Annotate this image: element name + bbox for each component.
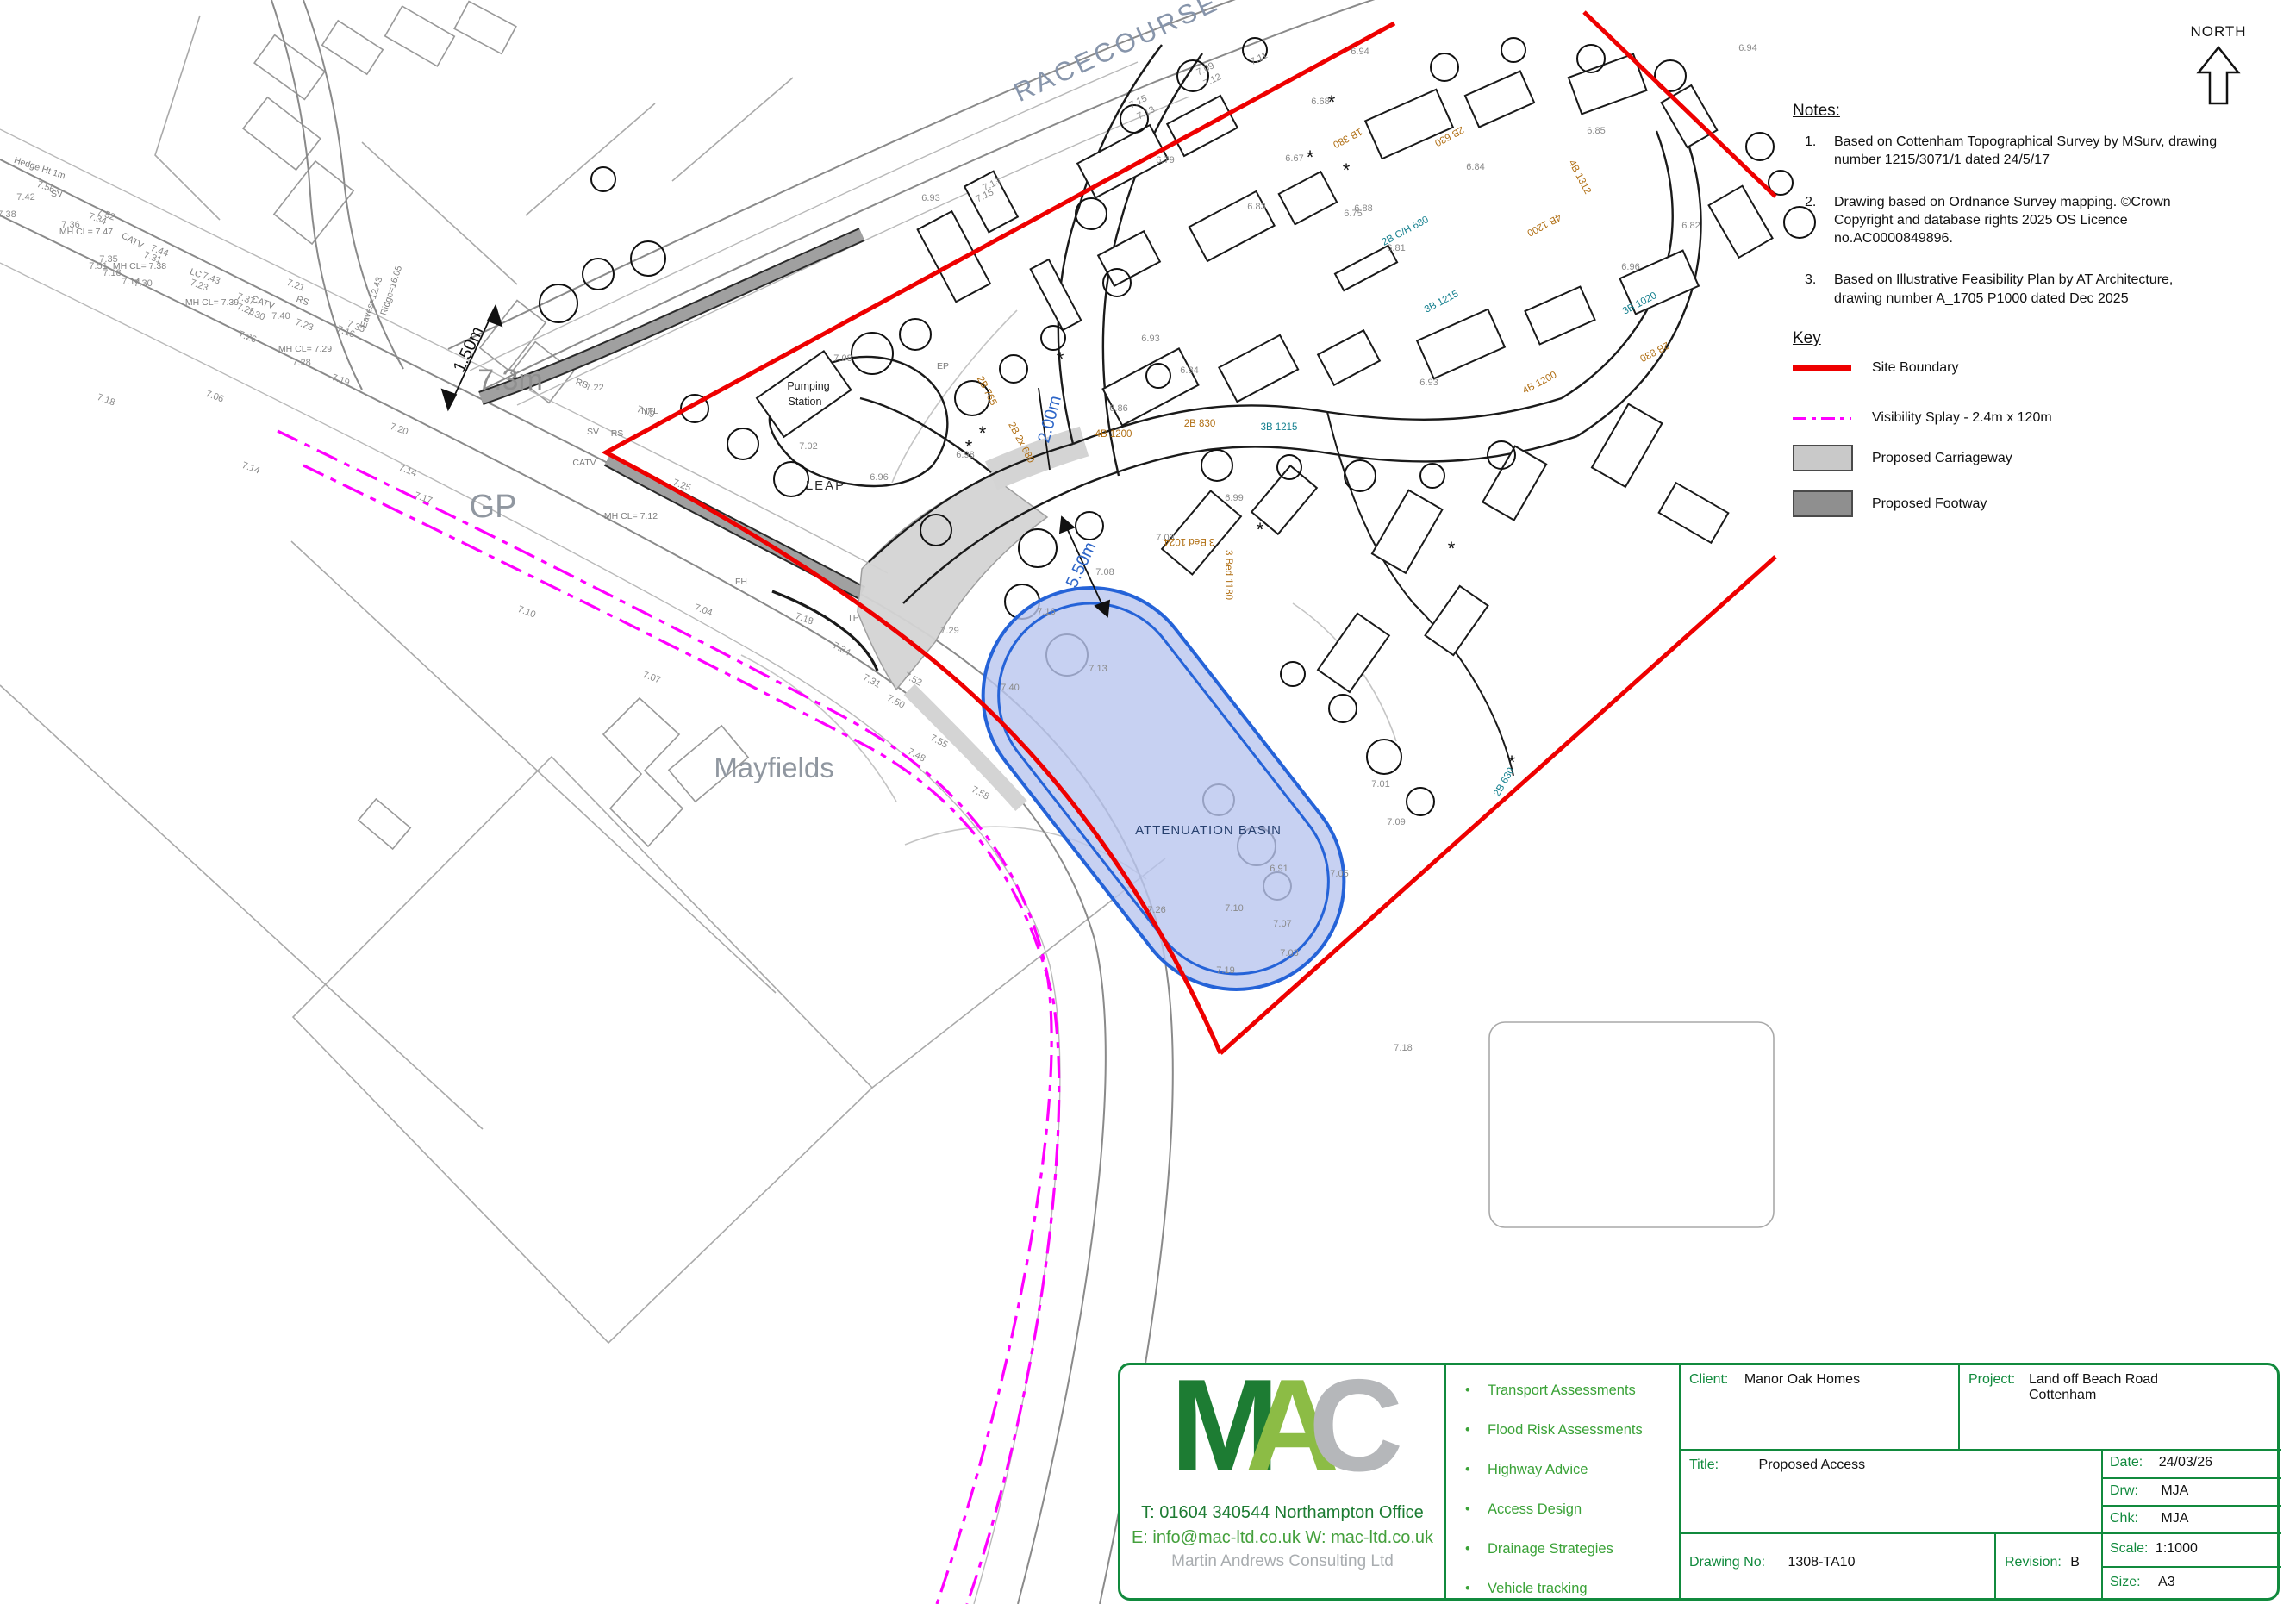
map-annotation: 7.02 <box>799 441 817 452</box>
logo-email-line: E: info@mac-ltd.co.uk W: mac-ltd.co.uk <box>1120 1528 1444 1548</box>
map-annotation: 7.31 <box>861 672 883 690</box>
map-annotation: NORTH <box>2190 23 2246 40</box>
revision-label: Revision: <box>2005 1555 2062 1570</box>
map-annotation: * <box>1448 538 1456 559</box>
title-label: Title: <box>1689 1457 1719 1472</box>
map-annotation: 6.86 <box>1109 403 1127 414</box>
map-annotation: 7.29 <box>940 626 958 636</box>
date-label: Date: <box>2110 1455 2143 1470</box>
map-annotation: 6.83 <box>1247 202 1265 212</box>
map-annotation: 1B 380 <box>1331 126 1363 150</box>
map-annotation: RS <box>611 428 624 439</box>
key-label: Proposed Footway <box>1872 496 1987 512</box>
map-annotation: * <box>1257 519 1264 540</box>
client-value: Manor Oak Homes <box>1744 1372 1860 1388</box>
map-annotation: MH CL= 7.29 <box>278 344 332 354</box>
map-annotation: GP <box>470 489 517 525</box>
key-label: Proposed Carriageway <box>1872 451 2012 466</box>
drawing-number-cell: Drawing No: 1308-TA10 <box>1681 1532 1994 1598</box>
map-annotation: 7.38 <box>0 209 16 220</box>
map-annotation: 7.14 <box>240 460 261 477</box>
notes-heading: Notes: <box>1793 102 2262 121</box>
scale-label: Scale: <box>2110 1541 2148 1556</box>
map-annotation: 7.50 <box>885 693 907 711</box>
note-item: 1. Based on Cottenham Topographical Surv… <box>1793 133 2262 170</box>
date-value: 24/03/26 <box>2159 1455 2212 1470</box>
map-annotation: FH <box>735 577 747 587</box>
drw-label: Drw: <box>2110 1483 2138 1498</box>
title-block-info: Client: Manor Oak Homes Project: Land of… <box>1679 1365 2280 1598</box>
title-value: Proposed Access <box>1759 1457 1866 1473</box>
map-annotation: 7.03 <box>1280 948 1298 958</box>
map-annotation: * <box>1508 752 1516 773</box>
project-cell: Project: Land off Beach Road Cottenham <box>1958 1365 2281 1449</box>
note-number: 3. <box>1805 271 1834 308</box>
map-annotation: CATV <box>572 458 596 468</box>
map-annotation: 7.10 <box>1225 903 1243 914</box>
map-annotation: 7.30 <box>246 307 266 323</box>
map-annotation: ATTENUATION BASIN <box>1135 823 1282 838</box>
project-value-line2: Cottenham <box>2029 1388 2273 1403</box>
service-item: •Drainage Strategies <box>1465 1541 1679 1557</box>
map-annotation: 7.42 <box>16 192 34 203</box>
note-text: Based on Illustrative Feasibility Plan b… <box>1834 271 2218 308</box>
map-annotation: 7.26 <box>237 329 258 346</box>
map-annotation: Mayfields <box>714 752 833 783</box>
title-block: MAC T: 01604 340544 Northampton Office E… <box>1118 1363 2280 1601</box>
map-annotation: 7.48 <box>906 746 927 765</box>
map-annotation: 6.93 <box>921 193 939 203</box>
map-annotation: 7.21 <box>285 278 306 294</box>
map-annotation: 7.26 <box>1147 905 1165 915</box>
map-annotation: 7.14 <box>397 463 418 479</box>
logo-phone-line: T: 01604 340544 Northampton Office <box>1120 1503 1444 1523</box>
service-item: •Vehicle tracking <box>1465 1581 1679 1597</box>
key-panel: Key Site Boundary Visibility Splay - 2.4… <box>1793 329 2262 536</box>
map-annotation: 7.36 <box>61 220 79 230</box>
map-annotation: 4B 1312 <box>1566 159 1593 196</box>
map-annotation: 7.19 <box>1216 965 1234 976</box>
map-annotation: 6.68 <box>1311 97 1329 107</box>
client-label: Client: <box>1689 1372 1728 1387</box>
service-item: •Access Design <box>1465 1501 1679 1518</box>
map-annotation: 7.52 <box>902 671 924 689</box>
map-annotation: 5.50m <box>1063 540 1100 591</box>
drawn-by-cell: Drw: MJA <box>2101 1477 2281 1505</box>
note-text: Drawing based on Ordnance Survey mapping… <box>1834 193 2218 248</box>
map-annotation: 7.34 <box>831 640 852 658</box>
map-annotation: Ridge=16.05 <box>378 265 404 317</box>
size-label: Size: <box>2110 1575 2141 1589</box>
map-annotation: * <box>1057 348 1064 370</box>
drw-value: MJA <box>2161 1483 2188 1499</box>
key-item-footway: Proposed Footway <box>1793 490 2262 517</box>
map-annotation: 7.3m <box>477 364 543 396</box>
logo-company-line: Martin Andrews Consulting Ltd <box>1120 1552 1444 1571</box>
drawing-no-value: 1308-TA10 <box>1788 1555 1855 1570</box>
revision-value: B <box>2070 1555 2080 1570</box>
note-number: 1. <box>1805 133 1834 170</box>
key-item-site-boundary: Site Boundary <box>1793 360 2262 376</box>
note-item: 2. Drawing based on Ordnance Survey mapp… <box>1793 193 2262 248</box>
scale-cell: Scale: 1:1000 <box>2101 1532 2281 1566</box>
map-annotation: 7.01 <box>1371 779 1389 790</box>
map-annotation: 6.75 <box>1344 209 1362 219</box>
map-annotation: 7.18 <box>794 611 814 627</box>
key-item-carriageway: Proposed Carriageway <box>1793 445 2262 471</box>
checked-by-cell: Chk: MJA <box>2101 1505 2281 1532</box>
map-annotation: 6.79 <box>1156 155 1174 165</box>
map-annotation: 7.07 <box>641 670 662 686</box>
map-annotation: MH CL= 7.39 <box>185 297 239 308</box>
map-annotation: 6.84 <box>1180 365 1198 376</box>
map-annotation: 7.07 <box>1273 919 1291 929</box>
map-annotation: * <box>1328 91 1336 113</box>
map-annotation: 7.10 <box>516 604 537 621</box>
map-annotation: 7.18 <box>1394 1043 1412 1053</box>
existing-buildings <box>243 2 748 849</box>
map-annotation: 4B 1200 <box>1525 211 1563 238</box>
map-annotation: 7.08 <box>833 353 852 364</box>
map-annotation: 6.82 <box>1681 221 1700 231</box>
visibility-splay-swatch <box>1793 417 1872 420</box>
note-text: Based on Cottenham Topographical Survey … <box>1834 133 2218 170</box>
map-annotation: 6.84 <box>1466 162 1484 172</box>
map-annotation: 7.18 <box>103 268 121 278</box>
drawing-no-label: Drawing No: <box>1689 1555 1765 1570</box>
map-annotation: 3 Bed 1024 <box>1164 536 1214 546</box>
map-annotation: * <box>1343 159 1351 181</box>
project-label: Project: <box>1968 1372 2015 1388</box>
client-cell: Client: Manor Oak Homes <box>1681 1365 1958 1449</box>
service-item: •Flood Risk Assessments <box>1465 1422 1679 1439</box>
map-annotation: 6.96 <box>1621 262 1639 272</box>
map-annotation: Station <box>789 396 822 408</box>
map-annotation: * <box>1307 147 1314 168</box>
map-annotation: TP <box>847 613 858 623</box>
map-annotation: 7.58 <box>970 784 991 802</box>
map-annotation: 6.94 <box>1738 43 1756 53</box>
map-annotation: 2B 830 <box>1638 340 1670 364</box>
chk-label: Chk: <box>2110 1511 2138 1526</box>
map-annotation: 4B 1200 <box>1521 370 1558 396</box>
map-annotation: 7.05 <box>1330 869 1348 879</box>
note-item: 3. Based on Illustrative Feasibility Pla… <box>1793 271 2262 308</box>
map-annotation: MH CL= 7.12 <box>604 511 658 521</box>
revision-cell: Revision: B <box>1994 1532 2101 1598</box>
key-label: Visibility Splay - 2.4m x 120m <box>1872 410 2052 426</box>
map-annotation: 7.06 <box>204 389 225 405</box>
notes-panel: Notes: 1. Based on Cottenham Topographic… <box>1793 102 2262 331</box>
map-annotation: 3 Bed 1180 <box>1223 550 1233 600</box>
map-annotation: 6.99 <box>1225 493 1243 503</box>
map-annotation: 7.20 <box>389 421 409 438</box>
map-annotation: 7.14 <box>122 277 140 287</box>
map-annotation: * <box>979 422 987 444</box>
map-annotation: EP <box>937 361 949 371</box>
map-annotation: CATV <box>120 230 146 251</box>
carriageway-swatch <box>1793 445 1872 471</box>
scale-value: 1:1000 <box>2156 1541 2198 1557</box>
map-annotation: 7.22 <box>585 383 603 393</box>
map-annotation: 3B 1215 <box>1423 289 1460 315</box>
map-annotation: 3B 1215 <box>1261 422 1298 433</box>
chk-value: MJA <box>2161 1511 2188 1526</box>
north-arrow-icon <box>2199 47 2238 103</box>
map-annotation: 6.96 <box>870 472 888 483</box>
map-annotation: 6.67 <box>1285 153 1303 164</box>
date-cell: Date: 24/03/26 <box>2101 1449 2281 1477</box>
map-annotation: RS <box>295 294 310 308</box>
map-annotation: 7.40 <box>271 311 290 321</box>
map-annotation: 6.85 <box>1587 126 1605 136</box>
key-item-visibility-splay: Visibility Splay - 2.4m x 120m <box>1793 410 2262 426</box>
footway-swatch <box>1793 490 1872 517</box>
mac-logo: MAC <box>1120 1353 1444 1498</box>
map-annotation: 2B 830 <box>1184 419 1215 429</box>
map-annotation: 7.40 <box>1001 683 1019 693</box>
map-annotation: 7.04 <box>693 602 714 619</box>
map-annotation: 7.23 <box>294 317 315 334</box>
service-item: •Highway Advice <box>1465 1462 1679 1478</box>
size-cell: Size: A3 <box>2101 1566 2281 1598</box>
drawing-sheet: { "north": {"label": "NORTH"}, "notes": … <box>0 0 2296 1604</box>
key-label: Site Boundary <box>1872 360 1959 376</box>
map-annotation: 7.28 <box>292 358 310 368</box>
map-annotation: 4B 1200 <box>1095 429 1132 440</box>
key-heading: Key <box>1793 329 2262 348</box>
map-annotation: 7.08 <box>1095 567 1114 577</box>
map-annotation: * <box>965 436 973 458</box>
site-boundary-swatch <box>1793 365 1872 371</box>
drawing-title-cell: Title: Proposed Access <box>1681 1449 2101 1532</box>
map-annotation: 7.16 <box>1037 607 1055 617</box>
service-item: •Transport Assessments <box>1465 1382 1679 1399</box>
project-value-line1: Land off Beach Road <box>2029 1372 2273 1388</box>
note-number: 2. <box>1805 193 1834 248</box>
logo-letter-c: C <box>1308 1352 1394 1499</box>
mac-logo-cell: MAC T: 01604 340544 Northampton Office E… <box>1120 1365 1444 1598</box>
map-annotation: 7.13 <box>1089 664 1107 674</box>
map-annotation: 6.91 <box>1270 864 1288 874</box>
map-annotation: 7.17 <box>413 490 434 507</box>
map-annotation: 7.19 <box>330 372 351 389</box>
map-annotation: Pumping <box>787 380 829 392</box>
map-annotation: 7.56 <box>35 179 56 196</box>
size-value: A3 <box>2158 1575 2175 1590</box>
map-annotation: 7.09 <box>1387 817 1405 827</box>
map-annotation: 6.94 <box>1351 47 1369 57</box>
map-annotation: SV <box>587 427 599 437</box>
map-annotation: 6.93 <box>1419 378 1438 388</box>
map-annotation: 6.93 <box>1141 334 1159 344</box>
map-annotation: 7.18 <box>96 392 116 409</box>
map-annotation: LEAP <box>806 478 845 493</box>
services-cell: •Transport Assessments •Flood Risk Asses… <box>1444 1365 1679 1598</box>
map-annotation: 2B 765 <box>975 375 999 408</box>
